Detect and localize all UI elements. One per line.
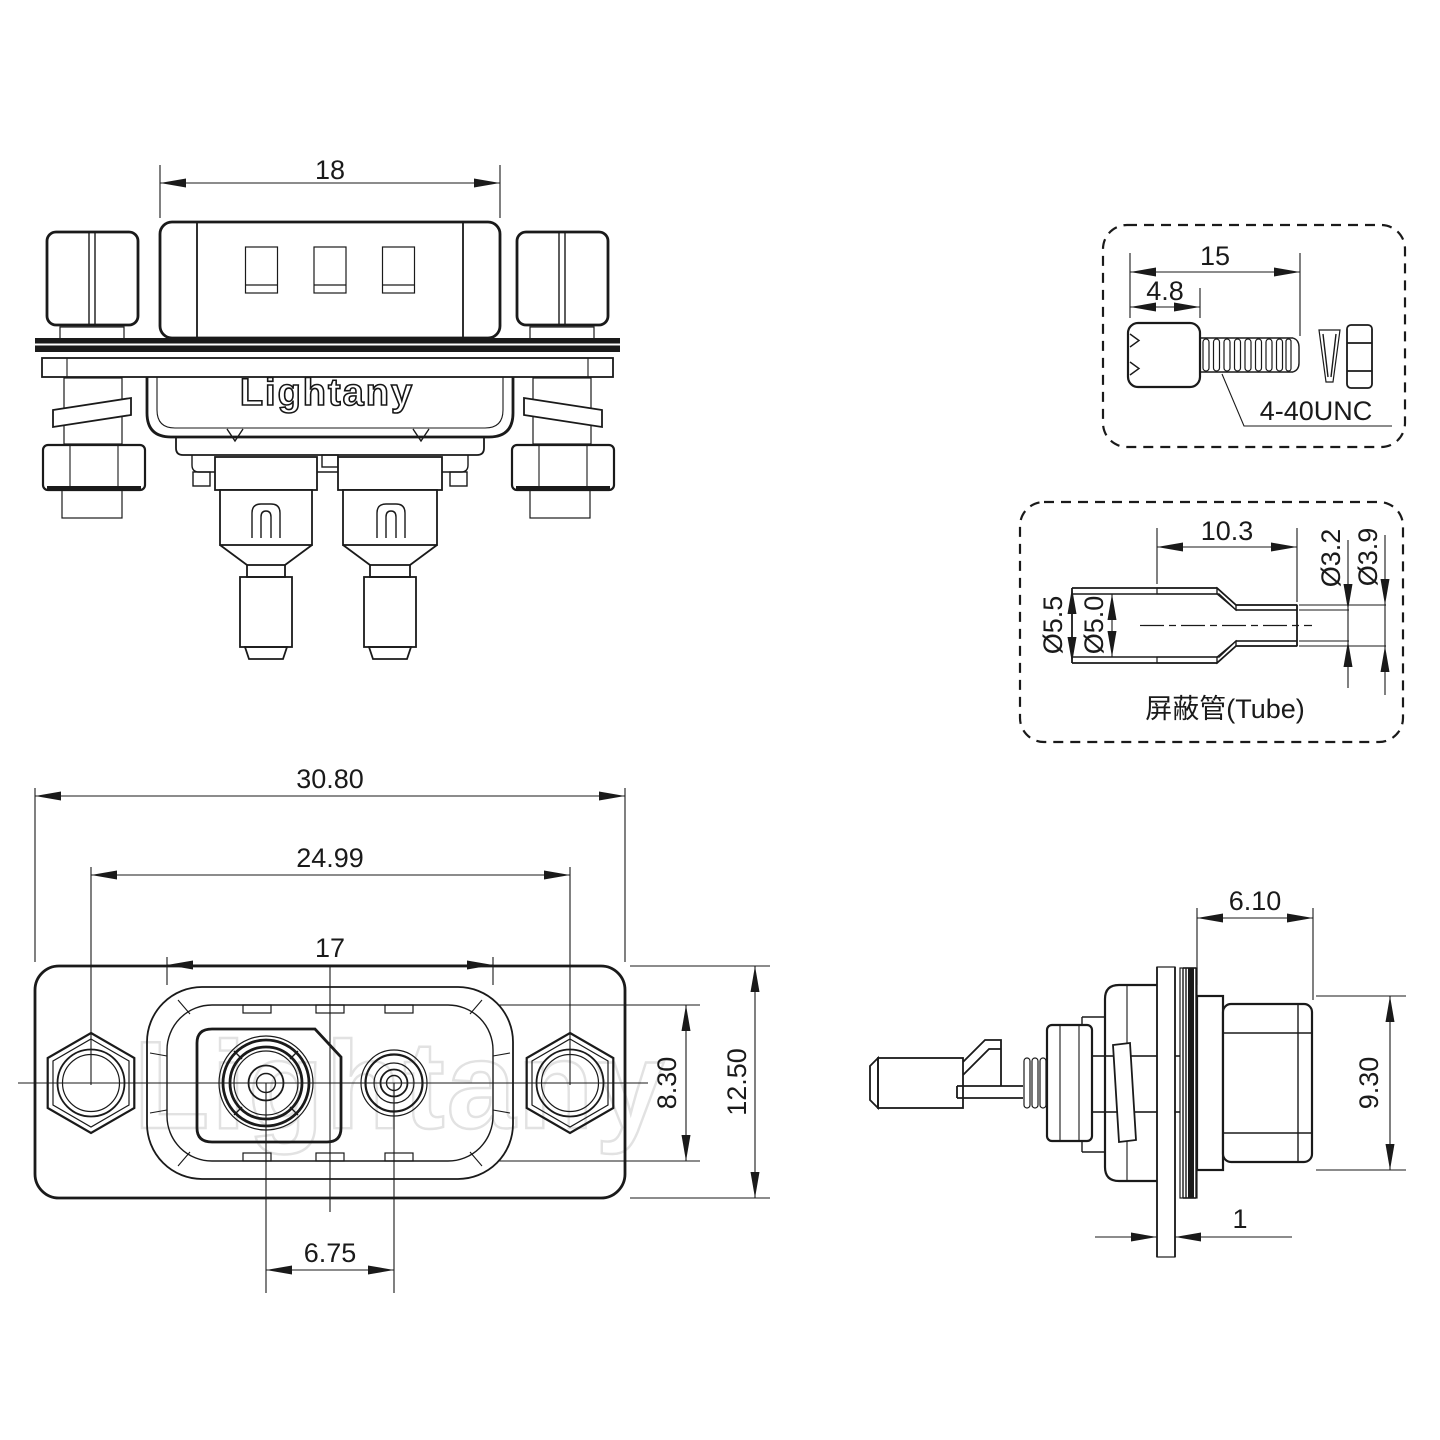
front-view: Lightany 30.80 24.99 17 xyxy=(18,764,770,1293)
watermark-lightany: Lightany xyxy=(134,1017,667,1155)
mount-stud-right xyxy=(512,378,614,518)
dim-shell-height: 8.30 xyxy=(652,1057,682,1110)
drawing-canvas: 18 Lightany xyxy=(0,0,1440,1440)
dim-large-inner-dia: Ø5.0 xyxy=(1079,596,1109,655)
top-view-rear-assembly: 18 Lightany xyxy=(35,155,620,659)
dim-small-outer-dia: Ø3.9 xyxy=(1353,528,1383,587)
dim-panel-thickness: 1 xyxy=(1232,1204,1247,1234)
dim-tube-length: 10.3 xyxy=(1201,516,1254,546)
dim-large-outer-dia: Ø5.5 xyxy=(1038,596,1068,655)
dim-shell-width-18: 18 xyxy=(315,155,345,185)
terminal-right xyxy=(338,457,442,659)
dim-screw-length-15: 15 xyxy=(1200,241,1230,271)
dim-flange-height: 12.50 xyxy=(722,1048,752,1116)
tube-label: 屏蔽管(Tube) xyxy=(1145,694,1305,724)
dim-shell-width-17: 17 xyxy=(315,933,345,963)
dim-body-height: 9.30 xyxy=(1354,1057,1384,1110)
mount-stud-left xyxy=(43,378,145,518)
logo-lightany-top: Lightany xyxy=(240,372,414,414)
dim-screw-head-4-8: 4.8 xyxy=(1146,276,1184,306)
screw-detail-view: 15 4.8 4-40UNC xyxy=(1103,225,1405,447)
thumbscrew-right xyxy=(517,232,608,339)
dim-body-depth: 6.10 xyxy=(1229,886,1282,916)
tube-detail-view: 10.3 Ø5.5 Ø5.0 Ø3.2 Ø3.9 屏蔽管(Tube) xyxy=(1020,502,1403,742)
pin-part xyxy=(1347,325,1372,388)
terminal-left xyxy=(215,457,317,659)
dim-contact-spacing: 6.75 xyxy=(304,1238,357,1268)
thread-spec-label: 4-40UNC xyxy=(1260,396,1373,426)
dim-mount-spacing: 24.99 xyxy=(296,843,364,873)
dim-small-inner-dia: Ø3.2 xyxy=(1316,529,1346,588)
wedge-part xyxy=(1319,330,1340,382)
connector-drawing: 18 Lightany xyxy=(0,0,1440,1440)
side-view: 6.10 9.30 1 xyxy=(870,886,1406,1257)
thumbscrew-left xyxy=(47,232,138,339)
dim-overall-width: 30.80 xyxy=(296,764,364,794)
